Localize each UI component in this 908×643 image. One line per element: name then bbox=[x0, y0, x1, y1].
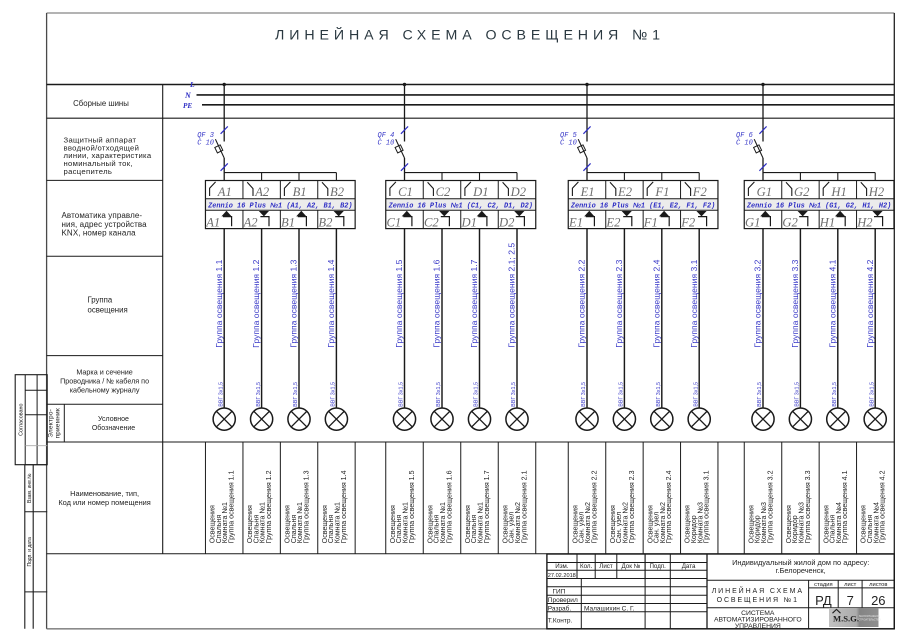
svg-text:A1: A1 bbox=[217, 185, 232, 199]
svg-text:МАЛОЭТАЖНОЕ: МАЛОЭТАЖНОЕ bbox=[859, 614, 880, 618]
svg-text:ВВГ 3х1,5: ВВГ 3х1,5 bbox=[757, 382, 763, 407]
svg-text:G2: G2 bbox=[794, 185, 810, 199]
svg-text:D1: D1 bbox=[461, 215, 477, 229]
svg-text:Дата: Дата bbox=[682, 563, 696, 570]
svg-text:Группа освещения 1.1: Группа освещения 1.1 bbox=[214, 259, 224, 347]
svg-text:27.02.2018: 27.02.2018 bbox=[548, 573, 576, 579]
svg-text:Группа освещения 1.3: Группа освещения 1.3 bbox=[302, 470, 310, 543]
svg-text:B1: B1 bbox=[293, 185, 307, 199]
svg-text:D2: D2 bbox=[498, 215, 515, 229]
svg-text:L: L bbox=[189, 80, 195, 89]
svg-text:Группа освещения 2.1: Группа освещения 2.1 bbox=[520, 470, 528, 543]
svg-text:Малашихин С. Г.: Малашихин С. Г. bbox=[584, 605, 635, 612]
svg-text:B1: B1 bbox=[281, 215, 295, 229]
svg-text:ВВГ 3х1,5: ВВГ 3х1,5 bbox=[619, 382, 625, 407]
svg-text:A2: A2 bbox=[243, 215, 259, 229]
svg-text:СТРОИТЕЛЬСТВО: СТРОИТЕЛЬСТВО bbox=[858, 617, 881, 621]
svg-text:ВВГ 3х1,5: ВВГ 3х1,5 bbox=[832, 382, 838, 407]
svg-text:Группа освещения 2.2: Группа освещения 2.2 bbox=[590, 470, 598, 543]
svg-text:Группа освещения 1.3: Группа освещения 1.3 bbox=[289, 259, 299, 347]
svg-text:Группа освещения 1.5: Группа освещения 1.5 bbox=[408, 470, 416, 543]
svg-text:C 10: C 10 bbox=[736, 140, 753, 148]
svg-text:Zennio 16 Plus №1 (A1, A2, B1,: Zennio 16 Plus №1 (A1, A2, B1, B2) bbox=[207, 202, 352, 210]
svg-text:ВВГ 3х1,5: ВВГ 3х1,5 bbox=[436, 382, 442, 407]
svg-text:Группа: Группа bbox=[88, 296, 113, 305]
svg-text:листов: листов bbox=[869, 582, 887, 588]
svg-text:D2: D2 bbox=[510, 185, 527, 199]
svg-text:Группа освещения 1.5: Группа освещения 1.5 bbox=[394, 259, 404, 347]
svg-text:G1: G1 bbox=[757, 185, 772, 199]
svg-text:Группа освещения 4.2: Группа освещения 4.2 bbox=[879, 470, 887, 543]
svg-text:Согласовано: Согласовано bbox=[18, 403, 24, 435]
svg-text:Кол.: Кол. bbox=[580, 563, 593, 570]
svg-text:E1: E1 bbox=[568, 215, 583, 229]
svg-text:KNX, номер канала: KNX, номер канала bbox=[62, 229, 137, 238]
svg-text:Группа освещения 2.3: Группа освещения 2.3 bbox=[628, 470, 636, 543]
svg-text:Zennio 16 Plus №1 (G1, G2, H1,: Zennio 16 Plus №1 (G1, G2, H1, H2) bbox=[746, 202, 891, 210]
svg-text:Группа освещения 3.3: Группа освещения 3.3 bbox=[804, 470, 812, 543]
svg-text:E2: E2 bbox=[617, 185, 633, 199]
svg-text:Группа освещения 4.1: Группа освещения 4.1 bbox=[827, 259, 837, 347]
svg-text:Группа освещения 1.4: Группа освещения 1.4 bbox=[340, 470, 348, 543]
svg-text:C2: C2 bbox=[436, 185, 451, 199]
svg-text:M.S.G.: M.S.G. bbox=[833, 614, 859, 624]
svg-text:ВВГ 3х1,5: ВВГ 3х1,5 bbox=[293, 382, 299, 407]
svg-text:ГИП: ГИП bbox=[553, 589, 566, 596]
svg-text:Изм.: Изм. bbox=[555, 563, 569, 570]
svg-text:Группа освещения 3.2: Группа освещения 3.2 bbox=[766, 470, 774, 543]
svg-text:Взам. инв.№: Взам. инв.№ bbox=[27, 473, 33, 503]
svg-text:Группа освещения 2.3: Группа освещения 2.3 bbox=[614, 259, 624, 347]
svg-text:РД: РД bbox=[815, 593, 832, 608]
svg-text:Группа освещения 3.1: Группа освещения 3.1 bbox=[703, 470, 711, 543]
svg-text:Автоматика управле-: Автоматика управле- bbox=[62, 211, 143, 220]
svg-text:A1: A1 bbox=[205, 215, 220, 229]
svg-text:Обозначение: Обозначение bbox=[92, 424, 135, 432]
svg-text:C1: C1 bbox=[387, 215, 402, 229]
svg-text:Группа освещения 1.7: Группа освещения 1.7 bbox=[469, 259, 479, 347]
svg-text:26: 26 bbox=[871, 593, 885, 608]
svg-text:Группа освещения 2.4: Группа освещения 2.4 bbox=[665, 470, 673, 543]
svg-text:G1: G1 bbox=[745, 215, 760, 229]
svg-text:E2: E2 bbox=[605, 215, 621, 229]
svg-text:Проводника / № кабеля по: Проводника / № кабеля по bbox=[60, 377, 149, 386]
svg-text:ния, адрес устройства: ния, адрес устройства bbox=[62, 220, 148, 229]
svg-text:Группа освещения 1.6: Группа освещения 1.6 bbox=[445, 470, 453, 543]
svg-text:ЛИНЕЙНАЯ СХЕМА ОСВЕЩЕНИЯ №1: ЛИНЕЙНАЯ СХЕМА ОСВЕЩЕНИЯ №1 bbox=[275, 26, 665, 44]
svg-text:Марка и сечение: Марка и сечение bbox=[76, 368, 132, 377]
svg-text:ВВГ 3х1,5: ВВГ 3х1,5 bbox=[256, 382, 262, 407]
svg-text:F1: F1 bbox=[643, 215, 658, 229]
svg-text:Zennio 16 Plus №1 (E1, E2, F1,: Zennio 16 Plus №1 (E1, E2, F1, F2) bbox=[570, 202, 715, 210]
svg-text:Док №: Док № bbox=[622, 563, 641, 570]
svg-text:стадия: стадия bbox=[814, 582, 832, 588]
svg-text:ОСВЕЩЕНИЯ №1: ОСВЕЩЕНИЯ №1 bbox=[717, 597, 799, 604]
svg-text:ВВГ 3х1,5: ВВГ 3х1,5 bbox=[399, 382, 405, 407]
svg-text:E1: E1 bbox=[580, 185, 595, 199]
svg-text:C 10: C 10 bbox=[197, 140, 214, 148]
svg-text:H2: H2 bbox=[856, 215, 873, 229]
svg-text:Сборные шины: Сборные шины bbox=[73, 99, 129, 108]
svg-text:Группа освещения 2.4: Группа освещения 2.4 bbox=[651, 259, 661, 347]
svg-text:Группа освещения 2.1; 2.5: Группа освещения 2.1; 2.5 bbox=[507, 243, 517, 348]
svg-text:D1: D1 bbox=[472, 185, 488, 199]
svg-text:C 10: C 10 bbox=[560, 140, 577, 148]
svg-text:ВВГ 3х1,5: ВВГ 3х1,5 bbox=[795, 382, 801, 407]
svg-text:PE: PE bbox=[183, 102, 192, 110]
svg-text:УПРАВЛЕНИЯ: УПРАВЛЕНИЯ bbox=[735, 623, 781, 630]
svg-text:A2: A2 bbox=[254, 185, 270, 199]
svg-text:ВВГ 3х1,5: ВВГ 3х1,5 bbox=[474, 382, 480, 407]
svg-text:Код или номер помещения: Код или номер помещения bbox=[58, 498, 150, 507]
svg-text:Разраб.: Разраб. bbox=[548, 604, 572, 612]
svg-text:F1: F1 bbox=[654, 185, 669, 199]
svg-text:Группа освещения 1.2: Группа освещения 1.2 bbox=[251, 259, 261, 347]
svg-text:F2: F2 bbox=[692, 185, 708, 199]
svg-text:кабельному журналу: кабельному журналу bbox=[70, 386, 140, 395]
svg-text:G2: G2 bbox=[782, 215, 798, 229]
svg-text:расцепитель: расцепитель bbox=[64, 167, 113, 176]
svg-text:Группа освещения 3.2: Группа освещения 3.2 bbox=[753, 259, 763, 347]
svg-text:Группа освещения 1.2: Группа освещения 1.2 bbox=[265, 470, 273, 543]
svg-text:Группа освещения 1.7: Группа освещения 1.7 bbox=[483, 470, 491, 543]
svg-text:Условное: Условное bbox=[98, 416, 129, 423]
svg-text:7: 7 bbox=[847, 593, 854, 608]
svg-text:ВВГ 3х1,5: ВВГ 3х1,5 bbox=[581, 382, 587, 407]
svg-text:Подп. и дата: Подп. и дата bbox=[27, 537, 33, 567]
svg-text:освещения: освещения bbox=[88, 305, 128, 314]
svg-text:H1: H1 bbox=[830, 185, 846, 199]
svg-text:Zennio 16 Plus №1 (C1, C2, D1,: Zennio 16 Plus №1 (C1, C2, D1, D2) bbox=[388, 202, 533, 210]
svg-text:Группа освещения 4.2: Группа освещения 4.2 bbox=[865, 259, 875, 347]
svg-text:г.Белореченск,: г.Белореченск, bbox=[776, 566, 826, 575]
svg-text:Подп.: Подп. bbox=[649, 563, 666, 570]
svg-text:Группа освещения 2.2: Группа освещения 2.2 bbox=[577, 259, 587, 347]
svg-text:ВВГ 3х1,5: ВВГ 3х1,5 bbox=[331, 382, 337, 407]
svg-text:лист: лист bbox=[844, 582, 857, 588]
svg-text:C 10: C 10 bbox=[378, 140, 395, 148]
svg-text:B2: B2 bbox=[330, 185, 345, 199]
svg-text:ВВГ 3х1,5: ВВГ 3х1,5 bbox=[511, 382, 517, 407]
svg-text:ЛИНЕЙНАЯ СХЕМА: ЛИНЕЙНАЯ СХЕМА bbox=[712, 586, 804, 595]
svg-text:Т.Контр.: Т.Контр. bbox=[548, 618, 573, 625]
svg-text:Группа освещения 4.1: Группа освещения 4.1 bbox=[841, 470, 849, 543]
svg-text:Проверил: Проверил bbox=[548, 597, 578, 604]
svg-text:Лист: Лист bbox=[599, 563, 613, 570]
svg-text:ВВГ 3х1,5: ВВГ 3х1,5 bbox=[218, 382, 224, 407]
svg-text:Группа освещения 1.4: Группа освещения 1.4 bbox=[326, 259, 336, 347]
svg-text:ВВГ 3х1,5: ВВГ 3х1,5 bbox=[656, 382, 662, 407]
svg-text:F2: F2 bbox=[680, 215, 696, 229]
svg-text:Группа освещения 1.6: Группа освещения 1.6 bbox=[432, 259, 442, 347]
svg-text:H1: H1 bbox=[819, 215, 835, 229]
svg-text:C2: C2 bbox=[424, 215, 439, 229]
svg-text:Группа освещения 1.1: Группа освещения 1.1 bbox=[228, 470, 236, 543]
svg-text:H2: H2 bbox=[868, 185, 885, 199]
svg-text:Наименование, тип,: Наименование, тип, bbox=[70, 489, 139, 498]
svg-text:ВВГ 3х1,5: ВВГ 3х1,5 bbox=[869, 382, 875, 407]
svg-text:B2: B2 bbox=[318, 215, 333, 229]
svg-text:ВВГ 3х1,5: ВВГ 3х1,5 bbox=[693, 382, 699, 407]
svg-text:Группа освещения 3.1: Группа освещения 3.1 bbox=[689, 259, 699, 347]
svg-text:C1: C1 bbox=[398, 185, 413, 199]
svg-text:Группа освещения 3.3: Группа освещения 3.3 bbox=[790, 259, 800, 347]
svg-text:приемник: приемник bbox=[54, 408, 61, 438]
